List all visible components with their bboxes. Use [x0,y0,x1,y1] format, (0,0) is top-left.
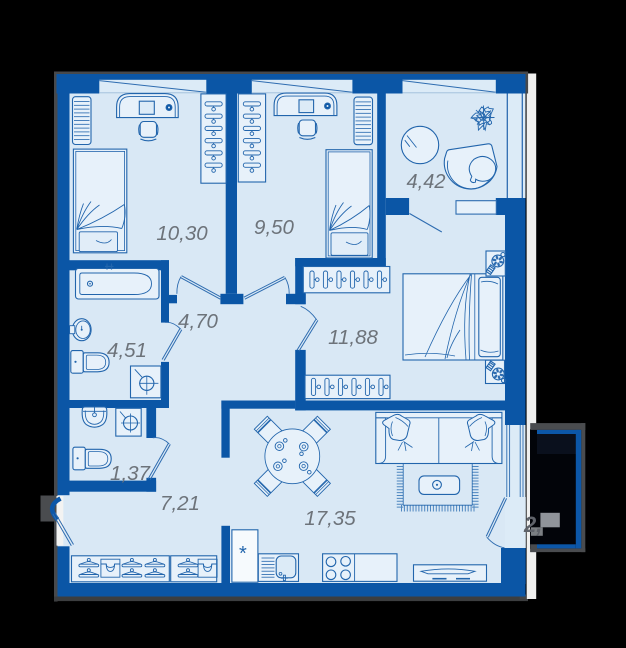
svg-text:7,21: 7,21 [160,492,200,515]
svg-text:4,42: 4,42 [407,171,446,193]
svg-text:9,50: 9,50 [254,216,294,239]
svg-text:2,: 2, [523,512,542,537]
svg-text:17,35: 17,35 [304,507,356,530]
svg-text:10,30: 10,30 [156,222,208,245]
svg-text:11,88: 11,88 [328,326,378,349]
svg-text:1,37: 1,37 [110,462,151,485]
svg-text:4,51: 4,51 [107,339,147,362]
svg-text:*: * [239,543,247,565]
svg-text:4,70: 4,70 [178,310,218,333]
